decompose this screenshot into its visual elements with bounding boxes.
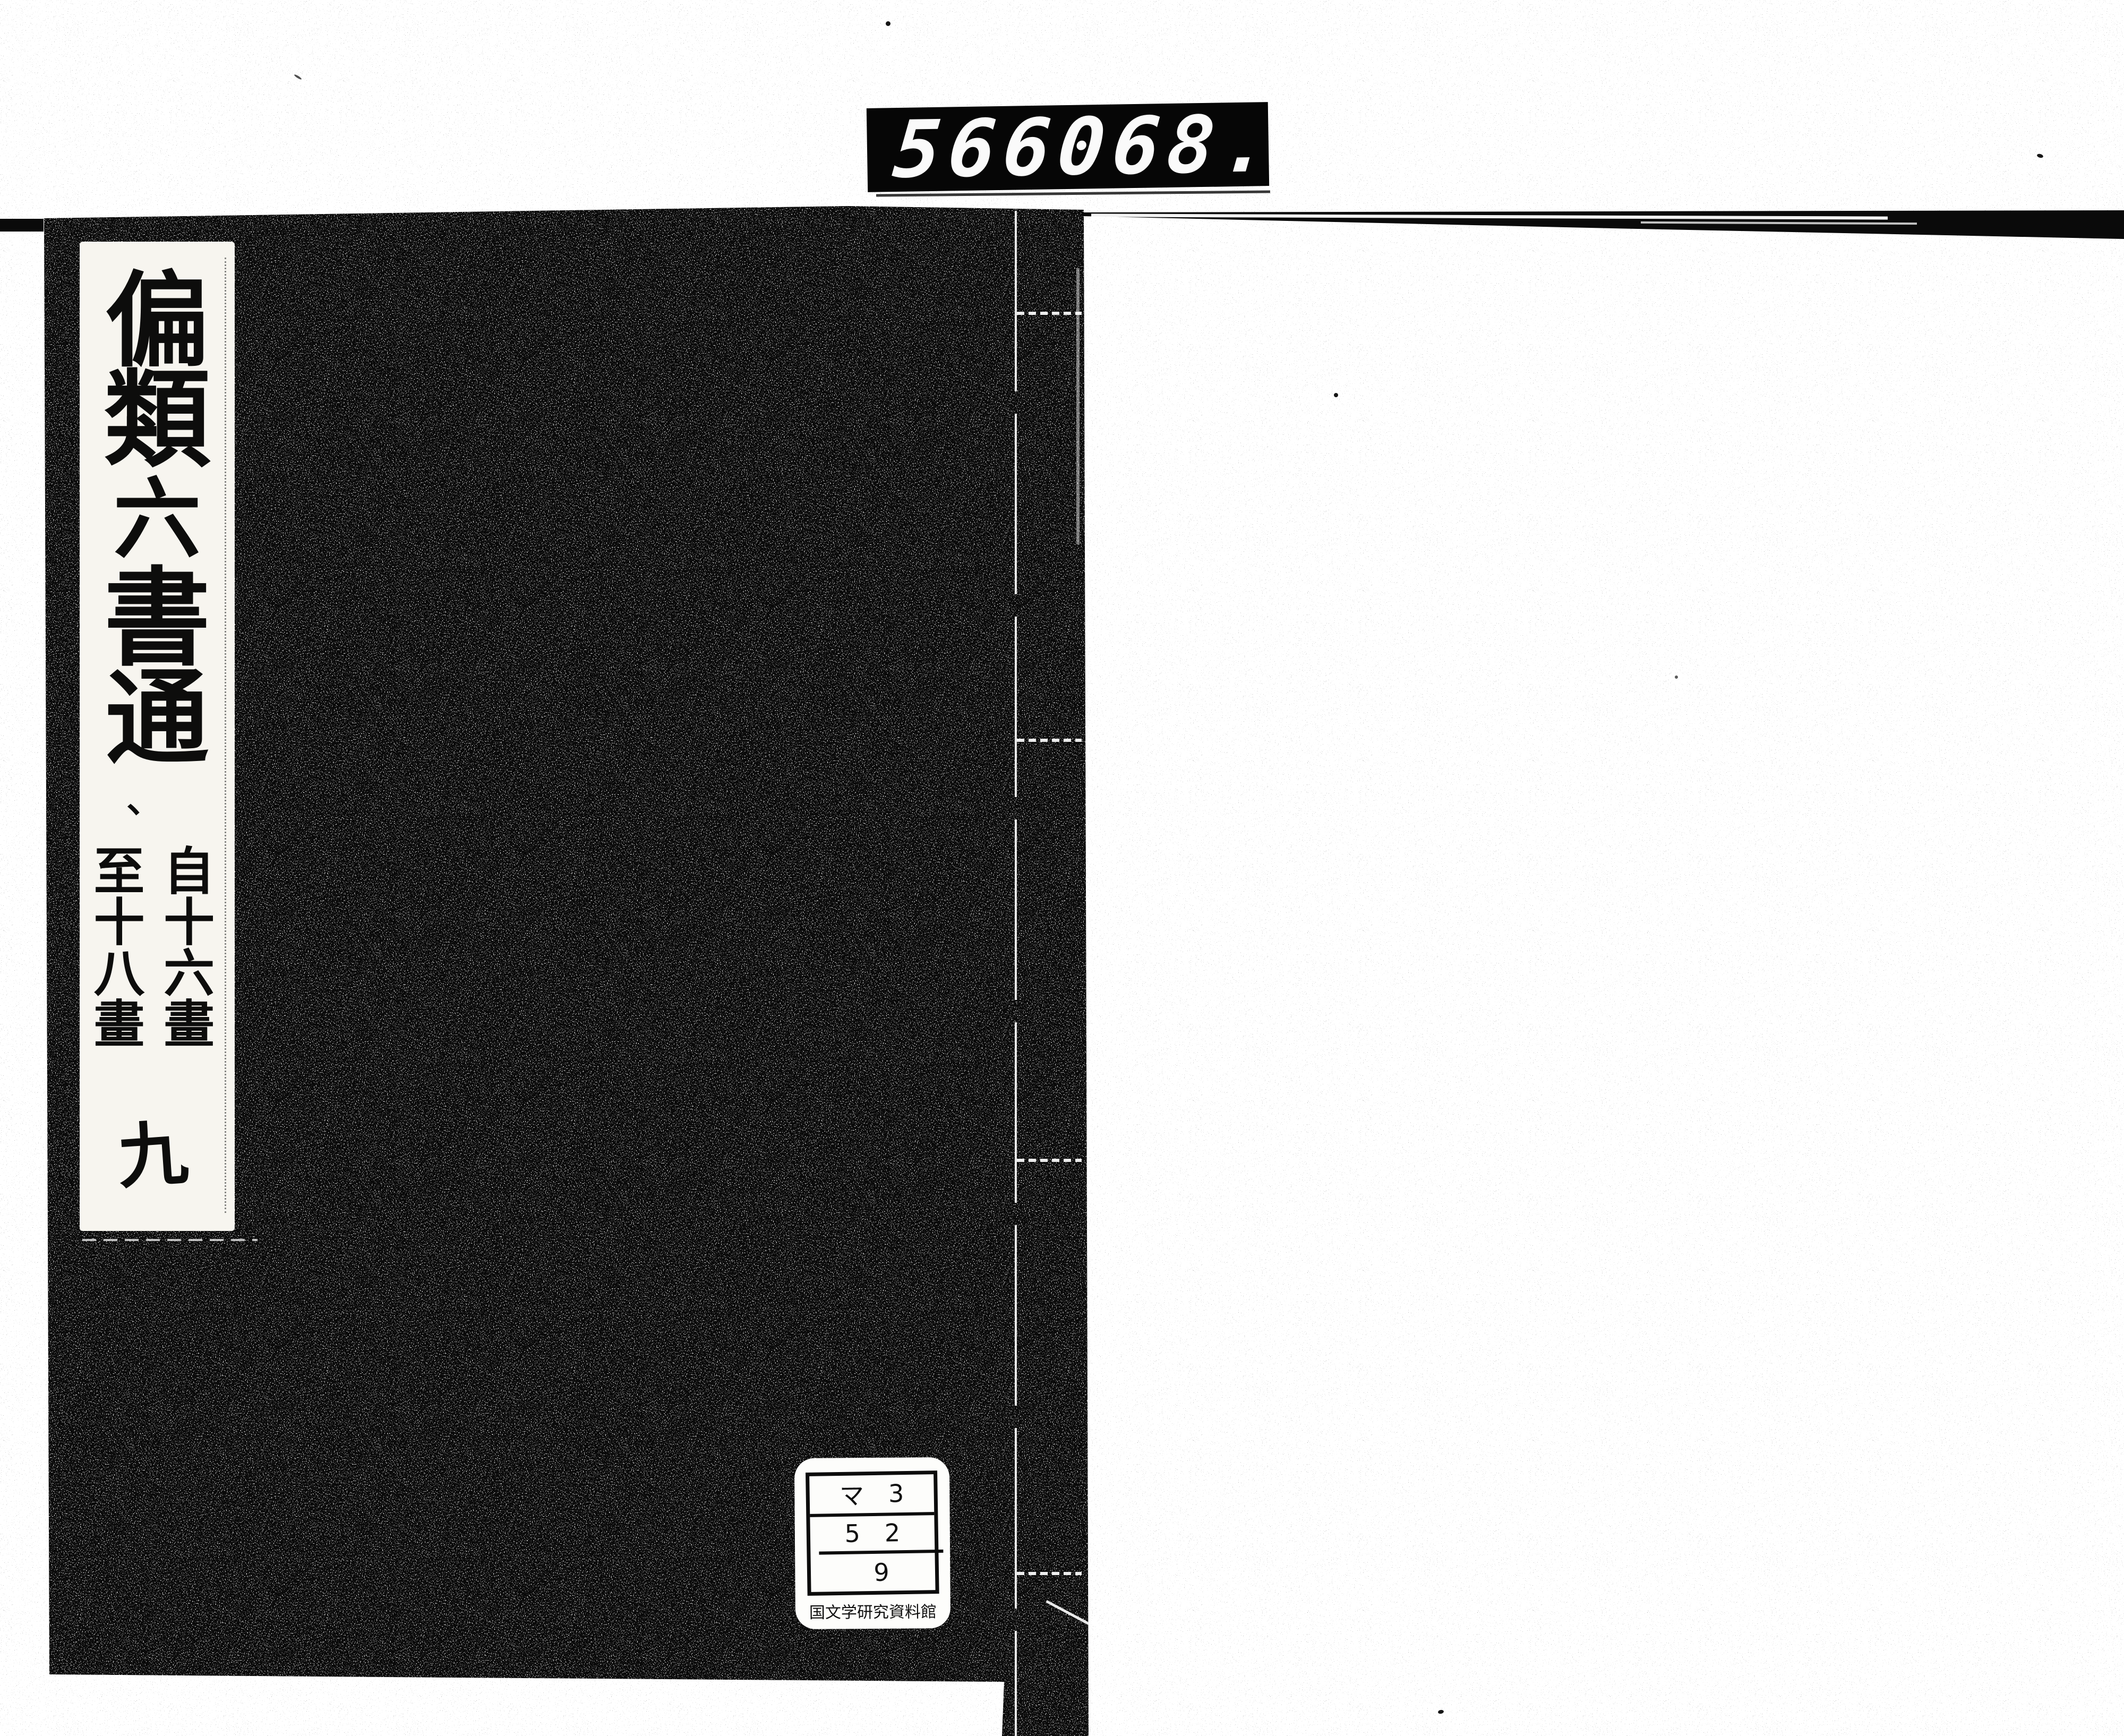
binding-stitch bbox=[1017, 1572, 1082, 1575]
title-slip: 偏 類 六 書 通 、 自十六畫 至十八畫 九 bbox=[80, 242, 235, 1231]
stroke-range-start: 自十六畫 bbox=[157, 844, 213, 1048]
binding-stitch bbox=[1017, 312, 1082, 315]
title-punctuation: 、 bbox=[126, 779, 162, 829]
dust-speck bbox=[294, 74, 302, 80]
library-name: 国文学研究資料館 bbox=[795, 1598, 950, 1623]
counter-right-digits: 068. bbox=[1055, 104, 1281, 187]
title-char: 類 bbox=[104, 370, 210, 469]
title-char: 六 bbox=[114, 469, 201, 569]
title-char: 書 bbox=[104, 569, 210, 668]
call-number-cell: マ bbox=[840, 1477, 864, 1512]
call-number-row: 9 bbox=[819, 1549, 944, 1592]
stroke-range-end: 至十八畫 bbox=[87, 844, 143, 1048]
call-number-row: マ 3 bbox=[809, 1474, 934, 1513]
binding-stitch bbox=[1017, 739, 1082, 742]
title-char: 通 bbox=[106, 668, 209, 767]
dust-speck bbox=[1437, 1709, 1444, 1714]
slip-bottom-dots bbox=[82, 1239, 258, 1241]
dust-speck bbox=[886, 21, 890, 26]
call-number-table: マ 3 5 2 9 bbox=[806, 1470, 939, 1596]
call-number-row: 5 2 bbox=[810, 1512, 935, 1551]
frame-counter: 566 068. bbox=[867, 102, 1269, 192]
counter-left-digits: 566 bbox=[890, 107, 1061, 190]
binding-stitch-line bbox=[1015, 211, 1017, 1736]
call-number-cell: 9 bbox=[873, 1558, 889, 1586]
call-number-label: マ 3 5 2 9 国文学研究資料館 bbox=[794, 1457, 950, 1629]
slip-edge-dots bbox=[225, 258, 226, 1213]
call-number-cell: 3 bbox=[888, 1479, 904, 1508]
dust-speck bbox=[1675, 675, 1678, 679]
scan-edge-mark bbox=[0, 219, 44, 232]
dust-speck bbox=[2036, 153, 2043, 159]
dust-speck bbox=[1334, 393, 1338, 397]
volume-number: 九 bbox=[115, 1116, 190, 1195]
binding-stitch bbox=[1017, 1159, 1082, 1162]
cover-edge-highlight bbox=[1076, 268, 1080, 544]
scanned-page: 566 068. 偏 類 bbox=[0, 0, 2124, 1736]
stroke-range: 自十六畫 至十八畫 bbox=[80, 844, 219, 1083]
call-number-cell: 5 bbox=[844, 1519, 860, 1548]
book-cover: 偏 類 六 書 通 、 自十六畫 至十八畫 九 マ 3 5 2 bbox=[40, 204, 1089, 1736]
scan-streak-band bbox=[1082, 208, 2124, 241]
call-number-cell: 2 bbox=[884, 1518, 900, 1547]
title-char: 偏 bbox=[106, 271, 209, 370]
